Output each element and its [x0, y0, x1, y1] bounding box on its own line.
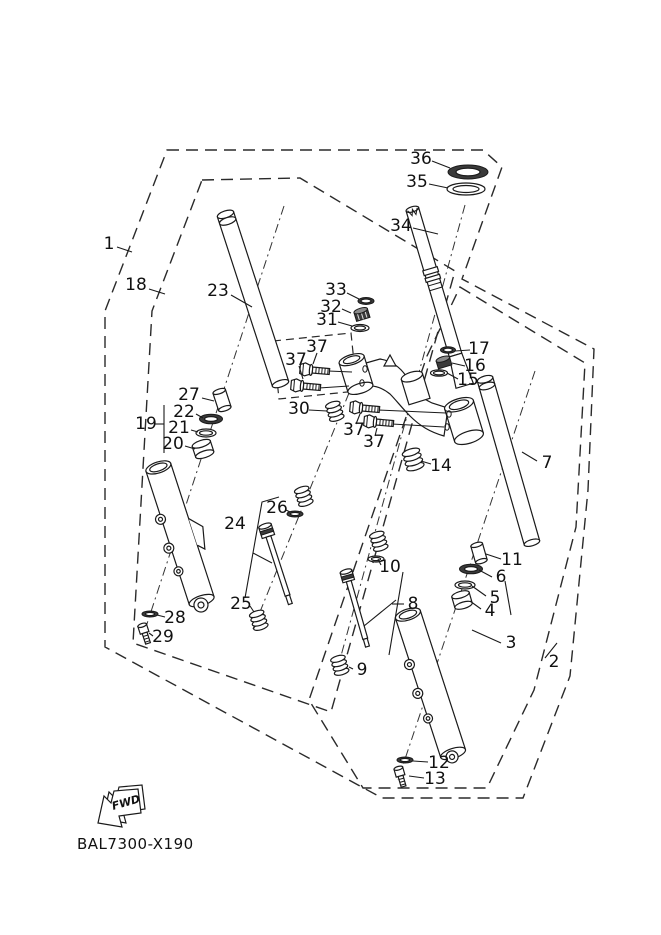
clamp-left-boss — [338, 351, 375, 397]
part-label-37: 37 — [285, 350, 307, 370]
seal-ring-5 — [455, 581, 475, 589]
leader-line-9 — [349, 667, 353, 669]
leader-line-31 — [338, 322, 352, 326]
part-label-4: 4 — [485, 601, 496, 621]
part-label-24: 24 — [224, 514, 246, 534]
part-label-18: 18 — [125, 275, 147, 295]
drawing-code: BAL7300-X190 — [77, 835, 194, 853]
leader-line-32 — [342, 309, 351, 313]
taper-spindle-27 — [212, 387, 231, 413]
leader-line-12 — [413, 761, 428, 762]
washer-15 — [431, 370, 448, 376]
leader-line-35 — [429, 184, 448, 188]
bolt-13 — [394, 765, 408, 787]
spring-30 — [325, 400, 345, 423]
leader-line-3 — [472, 630, 501, 643]
exploded-parts-diagram: FWD BAL7300-X190 11823272221201928292425… — [0, 0, 661, 935]
part-label-36: 36 — [410, 149, 432, 169]
washer-31 — [351, 325, 369, 332]
leader-line-13 — [409, 776, 424, 778]
part-label-10: 10 — [379, 557, 401, 577]
leader-line-6 — [479, 570, 492, 577]
spring-9 — [330, 654, 350, 677]
part-label-8: 8 — [408, 594, 419, 614]
part-label-35: 35 — [406, 172, 428, 192]
gasket-28 — [142, 611, 158, 617]
pinch-bolt-37 — [363, 414, 394, 430]
damper-rod-24 — [258, 522, 296, 606]
part-label-13: 13 — [424, 769, 446, 789]
part-label-20: 20 — [162, 434, 184, 454]
pinch-bolt-37 — [349, 400, 380, 416]
leader-line-27 — [202, 398, 214, 401]
oil-seal-6 — [460, 564, 483, 574]
rebound-spring-right — [369, 530, 389, 553]
pinch-bolt-37 — [290, 378, 321, 394]
inner-tube-right-7 — [476, 374, 540, 548]
part-label-34: 34 — [390, 216, 412, 236]
bearing-cover-36 — [448, 165, 488, 179]
cap-17 — [441, 347, 456, 353]
leader-line-18 — [149, 289, 165, 294]
leader-line-5 — [472, 586, 486, 596]
part-label-15: 15 — [457, 370, 479, 390]
clamp-right-boss — [443, 395, 485, 448]
oil-seal-22 — [200, 414, 223, 424]
outer-tube-left — [138, 455, 228, 617]
part-label-3: 3 — [506, 633, 517, 653]
part-label-23: 23 — [207, 281, 229, 301]
part-label-1: 1 — [104, 234, 115, 254]
parts-diagram-page: FWD BAL7300-X190 11823272221201928292425… — [0, 0, 661, 935]
rebound-spring-left — [294, 485, 314, 508]
part-label-7: 7 — [542, 453, 553, 473]
part-label-28: 28 — [164, 608, 186, 628]
part-label-2: 2 — [549, 652, 560, 672]
leader-line-30 — [309, 410, 327, 411]
part-label-25: 25 — [230, 594, 252, 614]
part-label-37: 37 — [343, 420, 365, 440]
bolt-pointer — [319, 386, 349, 388]
part-label-30: 30 — [288, 399, 310, 419]
leader-line-11 — [486, 554, 501, 559]
part-label-14: 14 — [430, 456, 452, 476]
bracket-8 — [364, 572, 403, 655]
gasket-12 — [397, 757, 413, 763]
outer-tube-right-3 — [387, 605, 468, 768]
part-label-37: 37 — [363, 432, 385, 452]
part-label-6: 6 — [496, 567, 507, 587]
fwd-arrow: FWD — [98, 785, 145, 827]
part-label-31: 31 — [316, 310, 338, 330]
adjust-nut-32 — [353, 306, 370, 321]
part-label-29: 29 — [152, 627, 174, 647]
leader-line-33 — [347, 293, 359, 299]
part-label-26: 26 — [266, 498, 288, 518]
ring-nut-33 — [358, 298, 374, 305]
leader-line-7 — [522, 452, 537, 461]
part-label-9: 9 — [357, 660, 368, 680]
slide-bushing-4 — [451, 589, 473, 611]
leader-line-36 — [432, 161, 450, 168]
taper-spindle-11 — [470, 541, 487, 565]
nut-16 — [435, 355, 451, 369]
washer-35 — [447, 183, 485, 195]
part-label-37: 37 — [306, 337, 328, 357]
seal-ring-21 — [196, 429, 216, 437]
part-label-19: 19 — [135, 414, 157, 434]
